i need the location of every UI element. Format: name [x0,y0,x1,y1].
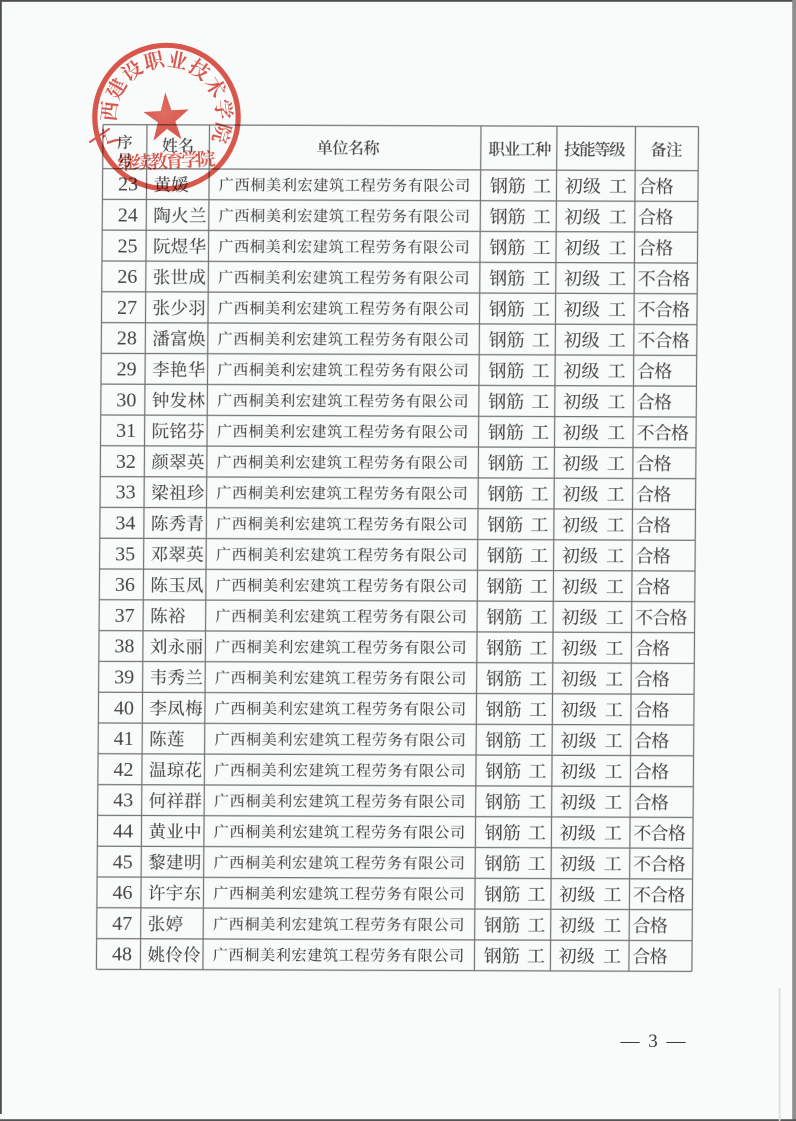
svg-text:27: 27 [117,297,137,319]
svg-text:44: 44 [113,820,133,842]
svg-text:40: 40 [114,697,134,719]
svg-text:48: 48 [112,944,132,966]
svg-text:36: 36 [115,574,135,596]
svg-text:41: 41 [114,728,134,750]
svg-text:26: 26 [117,266,137,288]
svg-text:29: 29 [117,358,137,380]
svg-text:31: 31 [116,420,136,442]
svg-text:37: 37 [115,605,135,627]
svg-text:30: 30 [116,389,136,411]
svg-text:43: 43 [113,790,133,812]
svg-text:35: 35 [115,543,135,565]
svg-text:39: 39 [114,666,134,688]
svg-text:42: 42 [113,759,133,781]
svg-text:45: 45 [113,851,133,873]
svg-text:38: 38 [114,636,134,658]
svg-text:32: 32 [116,451,136,473]
svg-text:28: 28 [117,328,137,350]
svg-text:— 3 —: — 3 — [620,1031,688,1052]
svg-text:25: 25 [117,235,137,257]
svg-text:33: 33 [116,482,136,504]
svg-text:46: 46 [112,882,132,904]
svg-text:47: 47 [112,913,132,935]
svg-text:34: 34 [115,512,135,534]
svg-text:24: 24 [118,204,138,226]
